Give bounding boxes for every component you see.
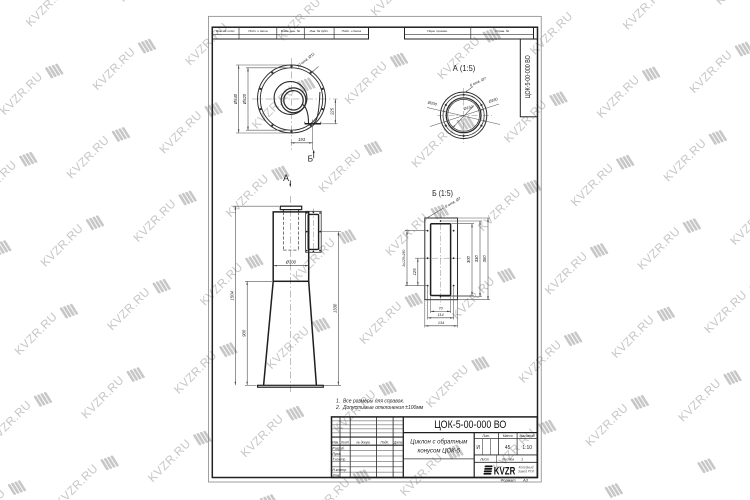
svg-text:2x125=250: 2x125=250 xyxy=(402,250,406,268)
svg-text:10 отв. Ø11: 10 отв. Ø11 xyxy=(296,52,315,68)
svg-text:KVZR.RU: KVZR.RU xyxy=(238,412,287,461)
svg-text:1: 1 xyxy=(521,457,523,461)
svg-text:Ø150: Ø150 xyxy=(462,105,474,112)
svg-text:Лист: Лист xyxy=(479,457,489,461)
svg-text:KVZR.RU: KVZR.RU xyxy=(38,221,87,270)
svg-text:Подп. и дата: Подп. и дата xyxy=(342,29,362,33)
svg-text:А (1:5): А (1:5) xyxy=(453,64,476,73)
svg-text:1504: 1504 xyxy=(229,290,234,300)
svg-text:KVZR.RU: KVZR.RU xyxy=(727,199,750,248)
svg-text:KVZR.RU: KVZR.RU xyxy=(609,312,658,361)
svg-text:Масштаб: Масштаб xyxy=(519,434,535,438)
svg-text:70: 70 xyxy=(438,307,443,311)
svg-text:KVZR.RU: KVZR.RU xyxy=(635,224,684,273)
svg-text:193: 193 xyxy=(298,137,306,142)
svg-text:KVZR.RU: KVZR.RU xyxy=(12,309,61,358)
svg-text:KVZR.RU: KVZR.RU xyxy=(713,0,750,8)
svg-text:KVZR.RU: KVZR.RU xyxy=(675,376,724,425)
svg-text:ЦОК-5-00-000 ВО: ЦОК-5-00-000 ВО xyxy=(434,419,506,431)
svg-text:1330: 1330 xyxy=(332,303,337,313)
svg-text:KVZR.RU: KVZR.RU xyxy=(104,285,153,334)
svg-text:KVZR.RU: KVZR.RU xyxy=(330,387,379,436)
svg-text:Н.контр.: Н.контр. xyxy=(333,468,347,472)
svg-text:KVZR.RU: KVZR.RU xyxy=(223,171,272,220)
svg-text:Ø200: Ø200 xyxy=(426,100,438,106)
svg-text:ЦОК-5-00-000 ВО: ЦОК-5-00-000 ВО xyxy=(523,55,532,98)
svg-text:Ø540: Ø540 xyxy=(233,93,238,105)
svg-text:Ø300: Ø300 xyxy=(285,260,297,265)
svg-text:330: 330 xyxy=(474,255,479,263)
svg-text:KVZR.RU: KVZR.RU xyxy=(620,0,669,32)
svg-text:Утв.: Утв. xyxy=(333,473,341,477)
svg-text:KVZR.RU: KVZR.RU xyxy=(23,0,72,29)
svg-text:KVZR: KVZR xyxy=(494,466,516,478)
svg-text:А3: А3 xyxy=(522,479,529,483)
svg-text:KVZR.RU: KVZR.RU xyxy=(316,147,365,196)
svg-text:KVZR.RU: KVZR.RU xyxy=(594,72,643,121)
svg-text:KVZR.RU: KVZR.RU xyxy=(368,0,417,19)
svg-text:300: 300 xyxy=(466,255,471,263)
svg-text:134: 134 xyxy=(438,321,444,325)
svg-text:KVZR.RU: KVZR.RU xyxy=(64,133,113,182)
svg-text:KVZR.RU: KVZR.RU xyxy=(382,210,431,259)
svg-text:KVZR.RU: KVZR.RU xyxy=(52,461,101,500)
svg-text:KVZR.RU: KVZR.RU xyxy=(449,274,498,323)
svg-text:KVZR.RU: KVZR.RU xyxy=(116,0,165,5)
svg-text:KVZR.RU: KVZR.RU xyxy=(264,323,313,372)
svg-text:конусом ЦОК-5: конусом ЦОК-5 xyxy=(418,449,461,455)
svg-text:KVZR.RU: KVZR.RU xyxy=(0,398,34,447)
svg-text:И: И xyxy=(476,445,480,451)
svg-text:KVZR.RU: KVZR.RU xyxy=(423,362,472,411)
svg-text:2. Допустимые отклонения ±100: 2. Допустимые отклонения ±100мм xyxy=(335,405,424,411)
svg-text:Листов: Листов xyxy=(501,457,514,461)
svg-text:KVZR.RU: KVZR.RU xyxy=(130,196,179,245)
svg-text:KVZR.RU: KVZR.RU xyxy=(304,475,353,500)
svg-text:Завод РТИ: Завод РТИ xyxy=(518,470,535,474)
svg-text:KVZR.RU: KVZR.RU xyxy=(661,136,710,185)
svg-text:Инв. № дубл.: Инв. № дубл. xyxy=(310,29,329,33)
svg-text:225: 225 xyxy=(329,107,334,116)
svg-text:KVZR.RU: KVZR.RU xyxy=(275,0,324,43)
svg-text:KVZR.RU: KVZR.RU xyxy=(290,235,339,284)
svg-text:Взам. инв. №: Взам. инв. № xyxy=(281,29,301,33)
svg-text:Ø520: Ø520 xyxy=(242,93,247,105)
svg-text:KVZR.RU: KVZR.RU xyxy=(501,97,550,146)
svg-text:Дата: Дата xyxy=(393,440,403,444)
svg-text:KVZR.RU: KVZR.RU xyxy=(356,298,405,347)
svg-text:Инв. № подл.: Инв. № подл. xyxy=(216,29,235,33)
svg-text:Масса: Масса xyxy=(503,434,513,438)
svg-text:KVZR.RU: KVZR.RU xyxy=(434,34,483,83)
svg-text:1. Все размеры для справок.: 1. Все размеры для справок. xyxy=(336,398,404,404)
svg-text:125: 125 xyxy=(412,268,417,276)
svg-text:KVZR.RU: KVZR.RU xyxy=(90,44,139,93)
svg-text:KVZR.RU: KVZR.RU xyxy=(197,260,246,309)
svg-text:KVZR.RU: KVZR.RU xyxy=(0,486,8,500)
svg-text:Пров.: Пров. xyxy=(333,452,342,456)
svg-text:1:10: 1:10 xyxy=(522,445,532,451)
svg-text:KVZR.RU: KVZR.RU xyxy=(0,69,45,118)
svg-text:900: 900 xyxy=(241,329,246,337)
svg-text:KVZR.RU: KVZR.RU xyxy=(475,185,524,234)
svg-text:Б: Б xyxy=(308,154,314,164)
svg-text:KVZR.RU: KVZR.RU xyxy=(145,436,194,485)
svg-text:Перв. примен.: Перв. примен. xyxy=(427,29,448,33)
svg-text:350: 350 xyxy=(482,255,487,263)
svg-text:KVZR.RU: KVZR.RU xyxy=(397,450,446,499)
svg-text:KVZR.RU: KVZR.RU xyxy=(78,373,127,422)
svg-text:Б (1:5): Б (1:5) xyxy=(432,189,453,198)
svg-text:№ докум.: № докум. xyxy=(356,440,370,444)
svg-text:Циклон с обратным: Циклон с обратным xyxy=(410,440,467,446)
svg-text:KVZR.RU: KVZR.RU xyxy=(516,337,565,386)
svg-text:45: 45 xyxy=(505,445,511,451)
svg-text:А: А xyxy=(283,173,289,183)
svg-text:Справ. №: Справ. № xyxy=(495,29,510,33)
svg-text:KVZR.RU: KVZR.RU xyxy=(408,122,457,171)
svg-text:KVZR.RU: KVZR.RU xyxy=(342,58,391,107)
svg-text:Изм.: Изм. xyxy=(332,440,339,444)
svg-text:KVZR.RU: KVZR.RU xyxy=(568,161,617,210)
svg-text:KVZR.RU: KVZR.RU xyxy=(542,249,591,298)
svg-text:6 отв. Ø7: 6 отв. Ø7 xyxy=(469,76,487,87)
svg-text:KVZR.RU: KVZR.RU xyxy=(687,47,736,96)
svg-text:Ø180: Ø180 xyxy=(487,97,499,104)
svg-text:Лист: Лист xyxy=(340,440,350,444)
svg-text:Подп. и дата: Подп. и дата xyxy=(248,29,268,33)
svg-text:KVZR.RU: KVZR.RU xyxy=(156,108,205,157)
svg-text:114: 114 xyxy=(438,313,444,317)
svg-text:Лит.: Лит. xyxy=(481,434,490,438)
svg-text:Подп.: Подп. xyxy=(381,440,390,444)
svg-text:Разраб.: Разраб. xyxy=(333,447,345,451)
svg-text:Т.контр.: Т.контр. xyxy=(333,457,347,461)
svg-text:KVZR.RU: KVZR.RU xyxy=(0,158,19,207)
svg-text:KVZR.RU: KVZR.RU xyxy=(701,288,750,337)
svg-text:Формат: Формат xyxy=(500,479,515,483)
svg-text:KVZR.RU: KVZR.RU xyxy=(583,401,632,450)
